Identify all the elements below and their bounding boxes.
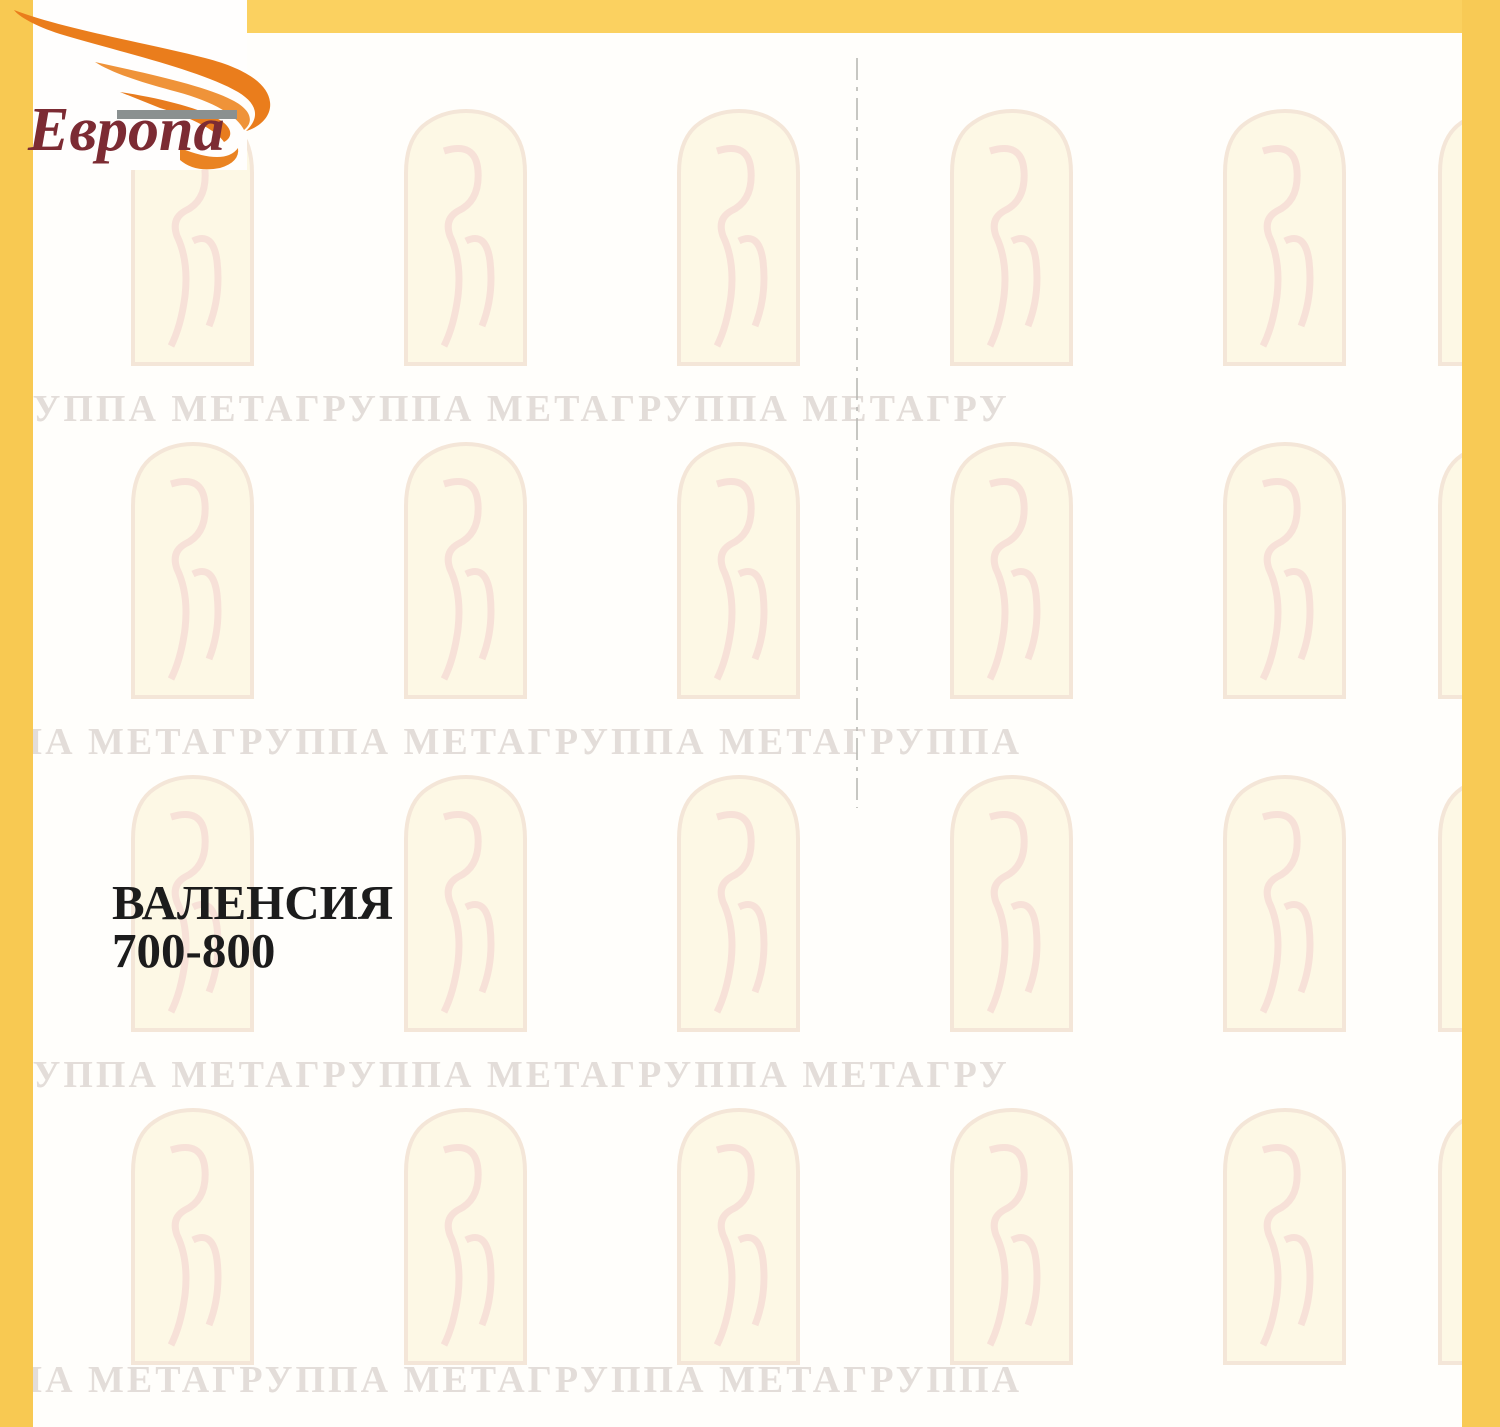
svg-text:Европа: Европа: [27, 96, 225, 164]
svg-text:ППА МЕТАГРУППА МЕТАГРУППА МЕТА: ППА МЕТАГРУППА МЕТАГРУППА МЕТАГРУППА: [0, 1359, 1022, 1401]
svg-text:700-800: 700-800: [112, 923, 275, 978]
svg-text:ППА МЕТАГРУППА МЕТАГРУППА МЕТА: ППА МЕТАГРУППА МЕТАГРУППА МЕТАГРУППА: [0, 721, 1022, 763]
svg-text:ГРУППА МЕТАГРУППА МЕТАГРУППА М: ГРУППА МЕТАГРУППА МЕТАГРУППА МЕТАГРУ: [0, 388, 1010, 430]
svg-text:ВАЛЕНСИЯ: ВАЛЕНСИЯ: [112, 875, 393, 930]
svg-text:ГРУППА МЕТАГРУППА МЕТАГРУППА М: ГРУППА МЕТАГРУППА МЕТАГРУППА МЕТАГРУ: [0, 1054, 1010, 1096]
